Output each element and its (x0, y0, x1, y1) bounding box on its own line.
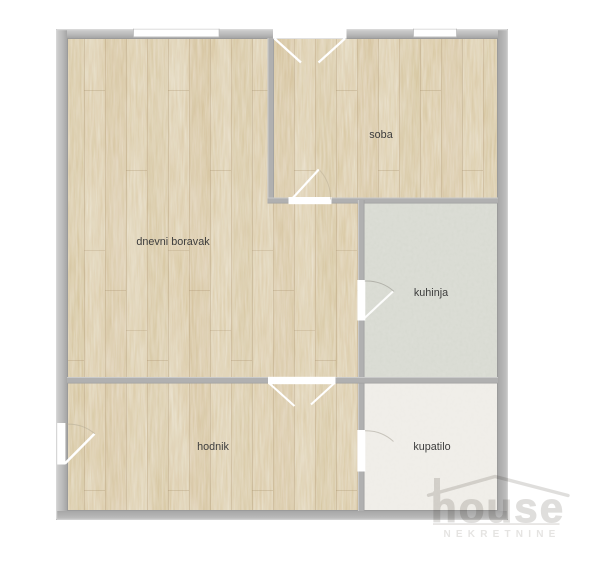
svg-text:dnevni boravak: dnevni boravak (136, 236, 210, 248)
svg-text:NEKRETNINE: NEKRETNINE (443, 529, 560, 540)
svg-text:soba: soba (369, 129, 392, 141)
svg-text:kuhinja: kuhinja (414, 287, 448, 299)
svg-text:kupatilo: kupatilo (413, 441, 450, 453)
svg-text:hodnik: hodnik (197, 441, 229, 453)
